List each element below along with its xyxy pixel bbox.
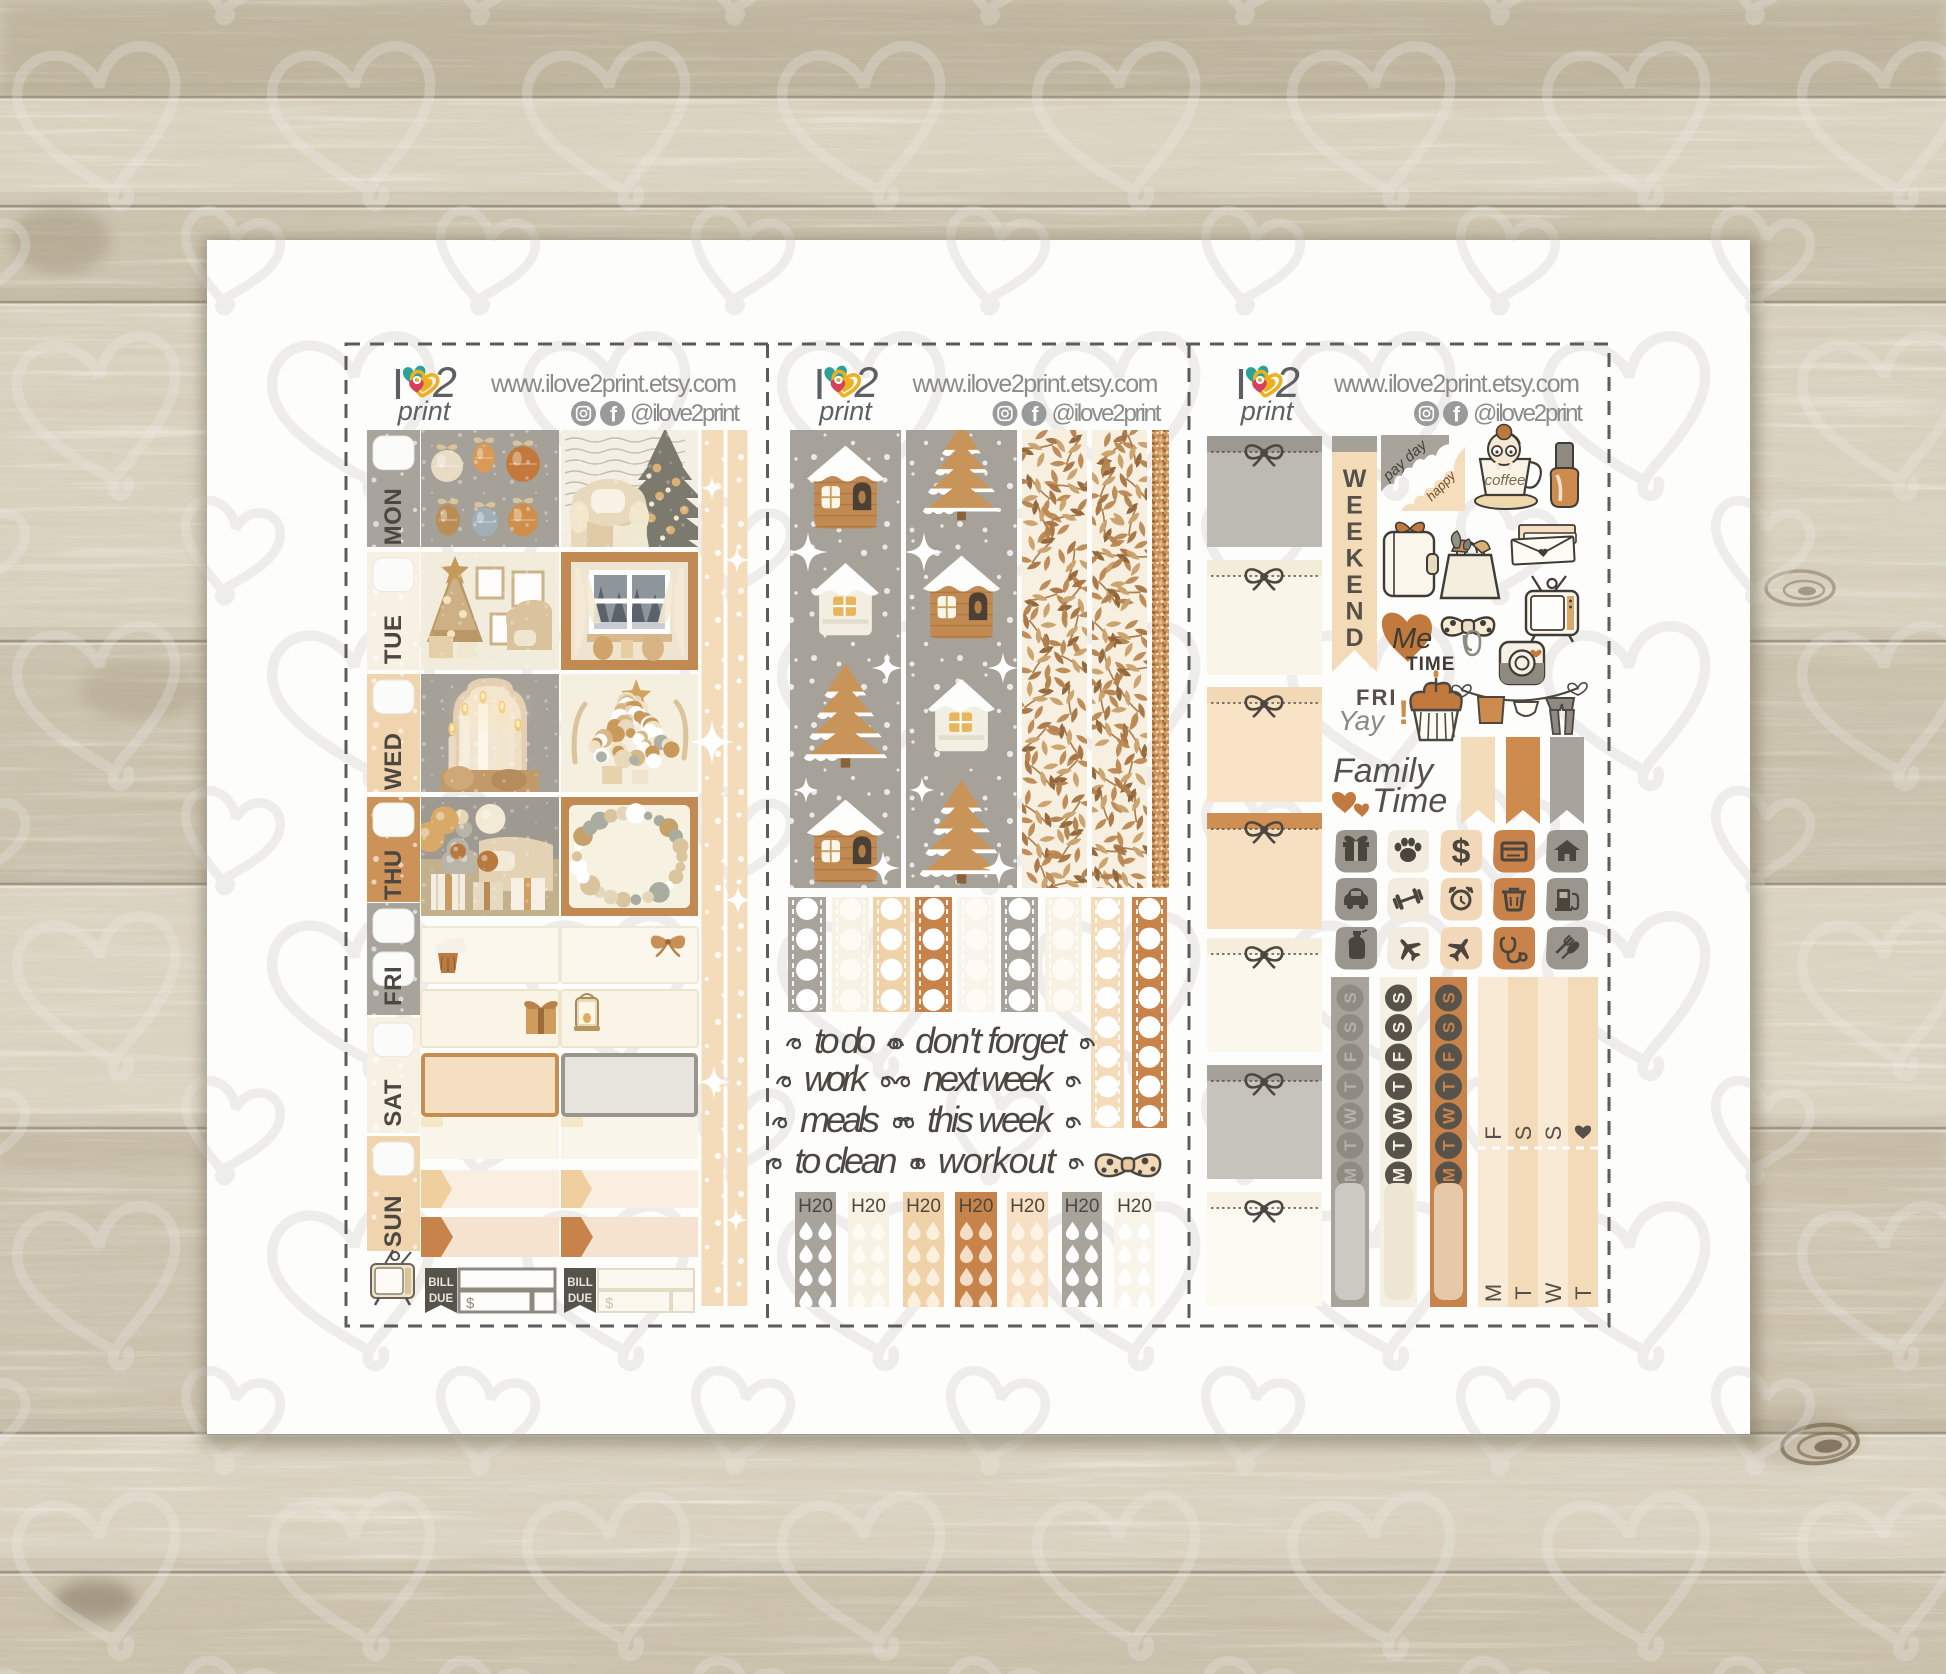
svg-text:print: print [1240,396,1295,426]
svg-text:M: M [1481,1284,1506,1302]
svg-text:@ilove2print: @ilove2print [630,400,740,427]
svg-text:S: S [1341,1022,1360,1033]
svg-text:F: F [1440,1052,1459,1062]
svg-text:SUN: SUN [380,1195,407,1247]
svg-text:S: S [1390,1022,1409,1033]
svg-text:S: S [1541,1126,1566,1141]
svg-text:next week: next week [923,1058,1055,1099]
svg-text:BILL: BILL [428,1277,454,1289]
svg-text:T: T [1390,1140,1409,1151]
svg-text:E: E [1346,518,1363,546]
svg-text:T: T [1341,1081,1360,1092]
svg-text:K: K [1345,545,1363,573]
svg-text:DUE: DUE [568,1293,593,1305]
svg-text:coffee: coffee [1485,472,1526,489]
svg-text:to do: to do [814,1020,876,1061]
svg-text:MON: MON [380,488,407,546]
svg-text:H20: H20 [1010,1196,1045,1217]
svg-text:print: print [818,396,873,426]
svg-text:S: S [1440,1022,1459,1033]
svg-text:THU: THU [380,849,407,900]
svg-text:@ilove2print: @ilove2print [1052,400,1162,427]
svg-text:T: T [1440,1140,1459,1151]
svg-text:$: $ [605,1295,614,1312]
svg-text:M: M [1440,1168,1459,1182]
svg-text:M: M [1390,1168,1409,1182]
svg-text:don't forget: don't forget [915,1020,1069,1061]
svg-text:TUE: TUE [380,615,407,665]
svg-text:$: $ [1452,833,1471,871]
svg-text:W: W [1343,465,1367,493]
svg-text:H20: H20 [851,1196,886,1217]
svg-text:Time: Time [1372,782,1447,820]
svg-text:W: W [1541,1282,1566,1303]
svg-text:D: D [1345,624,1363,652]
svg-text:F: F [1481,1126,1506,1139]
svg-text:E: E [1346,571,1363,599]
svg-text:@ilove2print: @ilove2print [1473,400,1583,427]
svg-text:T: T [1390,1081,1409,1092]
svg-text:this week: this week [927,1099,1055,1140]
svg-text:T: T [1511,1286,1536,1299]
svg-text:N: N [1345,598,1363,626]
svg-text:work: work [804,1058,870,1099]
svg-text:f: f [610,404,618,427]
svg-text:Me: Me [1392,623,1432,655]
svg-text:H20: H20 [906,1196,941,1217]
svg-text:print: print [397,396,452,426]
svg-text:meals: meals [800,1099,880,1140]
svg-text:DUE: DUE [429,1293,454,1305]
svg-text:F: F [1341,1052,1360,1062]
svg-text:H20: H20 [1065,1196,1100,1217]
svg-text:T: T [1571,1286,1596,1299]
svg-text:W: W [1440,1107,1459,1124]
svg-text:FRI: FRI [380,966,407,1006]
svg-text:f: f [1032,404,1040,427]
svg-text:S: S [1440,992,1459,1003]
svg-text:www.ilove2print.etsy.com: www.ilove2print.etsy.com [1333,370,1580,398]
svg-text:f: f [1453,404,1461,427]
svg-text:$: $ [466,1295,475,1312]
svg-text:BILL: BILL [567,1277,593,1289]
svg-text:H20: H20 [798,1196,833,1217]
svg-text:TIME: TIME [1406,654,1455,675]
svg-text:T: T [1341,1140,1360,1151]
svg-text:S: S [1390,992,1409,1003]
svg-text:E: E [1346,492,1363,520]
svg-text:M: M [1341,1168,1360,1182]
svg-text:T: T [1440,1081,1459,1092]
svg-text:SAT: SAT [380,1079,407,1127]
svg-text:W: W [1341,1107,1360,1124]
svg-text:www.ilove2print.etsy.com: www.ilove2print.etsy.com [912,370,1159,398]
svg-text:Yay: Yay [1338,705,1386,736]
svg-text:S: S [1511,1126,1536,1141]
svg-text:to clean: to clean [795,1140,898,1181]
svg-text:!: ! [1398,694,1409,732]
svg-text:H20: H20 [1117,1196,1152,1217]
svg-text:S: S [1341,992,1360,1003]
svg-text:WED: WED [380,733,407,791]
svg-text:www.ilove2print.etsy.com: www.ilove2print.etsy.com [490,370,737,398]
svg-text:H20: H20 [959,1196,994,1217]
svg-text:workout: workout [938,1140,1058,1181]
svg-text:W: W [1390,1107,1409,1124]
svg-text:F: F [1390,1052,1409,1062]
